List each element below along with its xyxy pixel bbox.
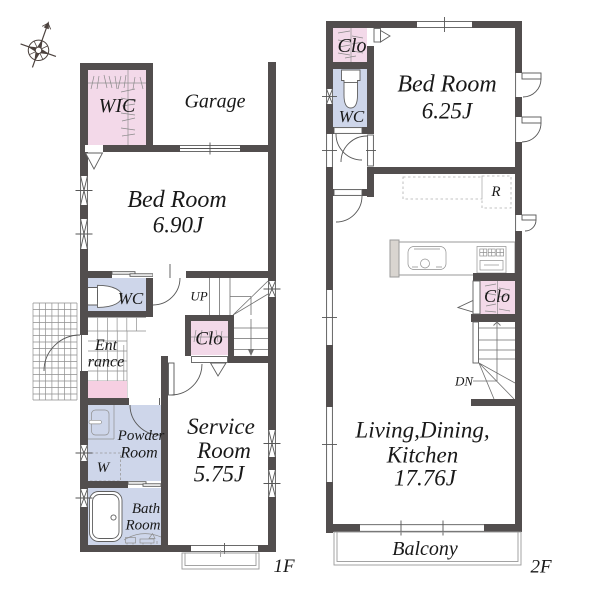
svg-text:Balcony: Balcony [392,538,458,560]
svg-text:Ent: Ent [94,337,118,354]
svg-text:DN: DN [454,374,474,389]
svg-text:1F: 1F [273,556,295,577]
svg-text:Garage: Garage [184,91,245,113]
svg-text:Room: Room [196,438,251,463]
svg-text:Bed Room: Bed Room [127,187,226,213]
svg-text:Powder: Powder [117,428,165,444]
svg-text:Service: Service [187,414,255,439]
svg-text:17.76J: 17.76J [394,466,458,491]
svg-text:6.90J: 6.90J [153,213,205,238]
svg-text:Kitchen: Kitchen [386,443,459,468]
svg-text:6.25J: 6.25J [422,99,474,124]
svg-text:W: W [97,460,111,476]
svg-text:Bed Room: Bed Room [397,72,496,98]
svg-text:WIC: WIC [99,95,136,117]
svg-text:Bath: Bath [132,501,160,517]
svg-text:rance: rance [88,354,124,371]
svg-text:Clo: Clo [338,35,367,57]
svg-text:WC: WC [118,289,144,308]
svg-text:5.75J: 5.75J [194,462,246,487]
svg-text:Clo: Clo [484,286,510,306]
svg-text:2F: 2F [530,557,552,578]
svg-text:Living,Dining,: Living,Dining, [354,418,489,443]
svg-text:Room: Room [125,518,161,534]
svg-text:Clo: Clo [195,329,222,350]
svg-text:WC: WC [339,107,365,126]
svg-text:UP: UP [190,289,207,304]
svg-text:Room: Room [119,445,157,462]
svg-text:R: R [490,184,500,200]
